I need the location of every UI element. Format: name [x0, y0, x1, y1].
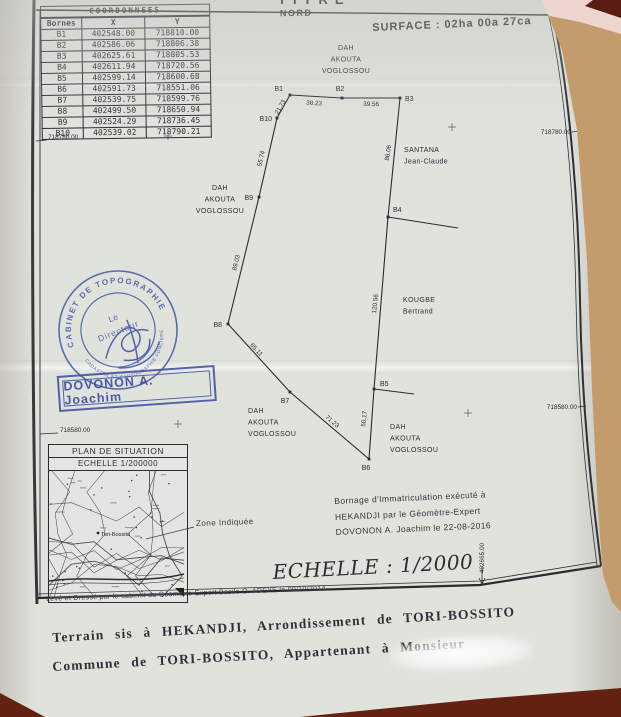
coordinates-table: COORDONNEES Bornes X Y B1402548.00718810…	[40, 4, 212, 140]
column-header-y: Y	[145, 16, 210, 28]
boundary-point-label: B7	[281, 398, 290, 405]
neighbor-owner-line: VOGLOSSOU	[248, 431, 296, 438]
map-road	[76, 566, 77, 567]
grid-tick	[40, 433, 58, 434]
whiteout-smudge	[391, 632, 533, 673]
table-cell: B4	[41, 62, 82, 74]
table-cell: 718810.00	[145, 27, 210, 39]
table-cell: 718650.94	[146, 104, 211, 116]
neighbor-owner-label: DAHAKOUTAVOGLOSSOU	[390, 424, 438, 454]
boundary-point-label: B4	[393, 207, 402, 214]
neighbor-owner-line: SANTANA	[404, 147, 439, 154]
neighbor-owner-line: DAH	[248, 408, 264, 415]
situation-map-box: PLAN DE SITUATION ECHELLE 1/200000 Tori-…	[48, 444, 188, 603]
neighbor-owner-line: AKOUTA	[331, 57, 362, 64]
frame-right-border	[552, 13, 601, 566]
table-cell: B2	[41, 40, 82, 52]
table-cell: 402586.06	[82, 39, 145, 51]
boundary-point-marker	[258, 196, 261, 199]
column-header-bornes: Bornes	[41, 17, 82, 29]
boundary-point-label: B5	[380, 381, 389, 388]
table-cell: 718806.38	[145, 38, 210, 50]
table-cell: B1	[41, 29, 82, 41]
table-cell: B7	[42, 95, 83, 107]
map-road	[134, 516, 135, 517]
segment-length-label: 21.73	[274, 98, 288, 116]
boundary-point-marker	[368, 458, 371, 461]
map-road	[150, 512, 151, 513]
table-cell: 718790.21	[146, 126, 211, 138]
neighbor-owner-label: DAHAKOUTAVOGLOSSOU	[248, 408, 296, 438]
boundary-point-marker	[341, 97, 344, 100]
segment-length-label: 86.06	[384, 144, 393, 161]
map-road	[111, 549, 112, 550]
map-road	[49, 542, 184, 569]
map-road	[128, 491, 129, 492]
parcel-boundary-polygon	[228, 95, 400, 459]
main-scale-label: ECHELLE : 1/2000	[272, 549, 474, 583]
map-road	[67, 484, 68, 485]
table-cell: B10	[42, 128, 83, 140]
table-cell: 402611.94	[82, 61, 145, 73]
table-cell: B6	[42, 84, 83, 96]
boundary-point-label: B9	[244, 195, 253, 202]
table-cell: 718736.45	[146, 115, 211, 127]
grid-tick	[578, 406, 586, 407]
map-road	[64, 583, 65, 584]
map-road	[151, 516, 152, 517]
map-road	[125, 572, 126, 573]
grid-tick	[572, 131, 580, 132]
neighbor-owner-line: DAH	[390, 424, 406, 431]
table-cell: 718720.56	[145, 60, 210, 72]
boundary-point-label: B2	[336, 86, 345, 93]
table-cell: 718805.53	[145, 49, 210, 61]
stamp-center-line1: Le	[107, 311, 120, 324]
neighbor-boundary-line	[388, 217, 458, 228]
table-cell: 402539.02	[83, 127, 146, 139]
clipped-document-title: TITRE	[278, 0, 351, 7]
table-cell: 402625.61	[82, 50, 145, 62]
table-cell: 718599.76	[146, 93, 211, 105]
boundary-point-marker	[373, 388, 376, 391]
coords-table-body: B1402548.00718810.00B2402586.06718806.38…	[41, 27, 212, 139]
situation-map-scale: ECHELLE 1/200000	[49, 458, 187, 471]
table-cell: 402499.50	[83, 105, 146, 117]
map-road	[65, 571, 66, 572]
neighbor-owner-label: SANTANAJean-Claude	[404, 147, 448, 166]
boundary-point-marker	[289, 391, 292, 394]
grid-coordinate-label: 718780.00	[541, 129, 572, 136]
neighbor-owner-line: Jean-Claude	[404, 159, 448, 166]
map-road	[101, 487, 102, 488]
surface-area-label: SURFACE : 02ha 00a 27ca	[372, 15, 532, 34]
segment-length-label: 89.03	[231, 254, 241, 271]
situation-map-svg: Tori-Bossito	[49, 471, 184, 597]
boundary-point-marker	[399, 97, 402, 100]
table-cell: 718551.06	[146, 82, 211, 94]
name-stamp-text: DOVONON A. Joachim	[62, 370, 211, 406]
segment-length-label: 120.56	[371, 293, 380, 313]
neighbor-owner-line: VOGLOSSOU	[196, 208, 244, 215]
zone-indicated-label: Zone Indiquée	[196, 517, 254, 528]
map-road	[52, 576, 53, 577]
map-road	[79, 568, 80, 569]
boundary-point-label: B6	[362, 465, 371, 472]
table-cell: 402591.73	[83, 83, 146, 95]
neighbor-owner-line: AKOUTA	[205, 197, 236, 204]
north-label: NORD	[280, 8, 313, 19]
map-road	[56, 587, 57, 588]
neighbor-owner-line: DAH	[212, 185, 228, 192]
boundary-point-marker	[387, 216, 390, 219]
column-header-x: X	[82, 17, 145, 29]
neighbor-owner-line: DAH	[338, 45, 354, 52]
map-road	[136, 527, 137, 528]
map-road	[131, 480, 132, 481]
neighbor-owner-label: DAHAKOUTAVOGLOSSOU	[322, 45, 370, 75]
map-town-dot	[97, 532, 100, 535]
map-road	[168, 483, 169, 484]
grid-coordinate-label-vertical: 402665.00	[479, 542, 486, 573]
neighbor-owner-line: VOGLOSSOU	[322, 68, 370, 75]
map-road	[129, 496, 130, 497]
boundary-point-marker	[227, 323, 230, 326]
bornage-note: Bornage d'Immatriculation exécuté à HEKA…	[334, 487, 491, 540]
segment-length-label: 39.56	[363, 101, 379, 109]
neighbor-owner-label: KOUGBEBertrand	[403, 297, 435, 316]
map-road	[49, 558, 184, 585]
map-road	[52, 471, 70, 597]
table-row: B10402539.02718790.21	[42, 126, 211, 139]
paper-sheet: TITRE NORD SURFACE : 02ha 00a 27ca COORD…	[0, 0, 621, 717]
table-cell: 402599.14	[82, 72, 145, 84]
map-road	[93, 494, 94, 495]
neighbor-owner-line: AKOUTA	[248, 420, 279, 427]
neighbor-owner-label: DAHAKOUTAVOGLOSSOU	[196, 185, 244, 215]
map-road	[50, 503, 51, 504]
map-road	[127, 471, 155, 597]
table-cell: B8	[42, 106, 83, 118]
segment-length-label: 38.23	[306, 99, 323, 107]
neighbor-owner-line: Bertrand	[403, 309, 433, 316]
table-cell: 402539.75	[83, 94, 146, 106]
map-road	[90, 509, 91, 510]
segment-length-label: 71.23	[324, 414, 341, 430]
map-road	[49, 503, 184, 527]
map-road	[136, 475, 137, 476]
map-town-label: Tori-Bossito	[101, 532, 130, 538]
table-cell: B9	[42, 117, 83, 129]
neighbor-owner-line: AKOUTA	[390, 436, 421, 443]
scanned-survey-document: TITRE NORD SURFACE : 02ha 00a 27ca COORD…	[0, 0, 621, 717]
table-cell: 402548.00	[82, 28, 145, 40]
map-road	[49, 471, 75, 597]
neighbor-boundary-line	[374, 389, 414, 394]
boundary-point-label: B8	[213, 322, 222, 329]
table-cell: 718600.68	[145, 71, 210, 83]
situation-map-title: PLAN DE SITUATION	[49, 445, 187, 458]
boundary-point-label: B10	[260, 116, 273, 123]
grid-tick	[36, 140, 47, 141]
grid-tick-arrow	[479, 578, 485, 584]
table-cell: 402524.29	[83, 116, 146, 128]
segment-length-label: 55.74	[256, 150, 266, 167]
table-cell: B3	[41, 51, 82, 63]
boundary-point-marker	[276, 117, 279, 120]
map-road	[62, 580, 63, 581]
segment-length-label: 50.17	[360, 410, 369, 427]
frame-right-border-inner	[548, 13, 597, 566]
map-road	[141, 537, 142, 538]
map-road	[171, 584, 172, 585]
grid-coordinate-label: 718580.00	[60, 427, 91, 434]
boundary-point-marker	[289, 94, 292, 97]
neighbor-owner-line: KOUGBE	[403, 297, 435, 304]
paper-fold-line	[33, 0, 37, 604]
table-cell: B5	[41, 73, 82, 85]
boundary-point-label: B3	[405, 96, 414, 103]
segment-length-label: 65.11	[248, 342, 264, 358]
neighbor-owner-line: VOGLOSSOU	[390, 447, 438, 454]
boundary-point-label: B1	[274, 86, 283, 93]
grid-coordinate-label: 718580.00	[547, 404, 578, 411]
